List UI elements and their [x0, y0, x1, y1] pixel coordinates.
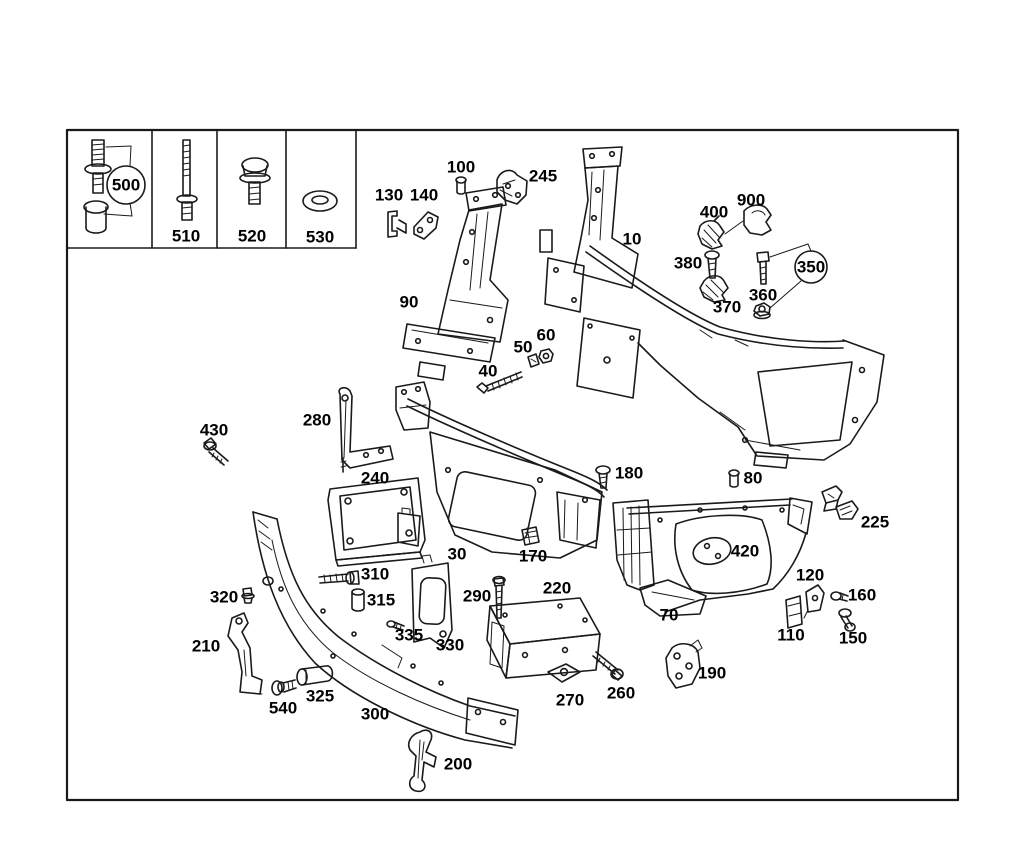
- part-label-50[interactable]: 50: [514, 339, 533, 356]
- part-label-500[interactable]: 500: [112, 177, 140, 194]
- part-label-420[interactable]: 420: [731, 543, 759, 560]
- part-label-200[interactable]: 200: [444, 756, 472, 773]
- part-label-320[interactable]: 320: [210, 589, 238, 606]
- part-label-400[interactable]: 400: [700, 204, 728, 221]
- part-label-270[interactable]: 270: [556, 692, 584, 709]
- part-label-240[interactable]: 240: [361, 470, 389, 487]
- part-label-380[interactable]: 380: [674, 255, 702, 272]
- part-label-10[interactable]: 10: [623, 231, 642, 248]
- part-label-430[interactable]: 430: [200, 422, 228, 439]
- part-label-510[interactable]: 510: [172, 228, 200, 245]
- part-label-300[interactable]: 300: [361, 706, 389, 723]
- part-label-350[interactable]: 350: [797, 259, 825, 276]
- part-label-330[interactable]: 330: [436, 637, 464, 654]
- part-label-30[interactable]: 30: [448, 546, 467, 563]
- part-label-260[interactable]: 260: [607, 685, 635, 702]
- part-label-80[interactable]: 80: [744, 470, 763, 487]
- callout-layer: 5005105205301002451301401090900400380370…: [0, 0, 1024, 852]
- part-label-140[interactable]: 140: [410, 187, 438, 204]
- part-label-540[interactable]: 540: [269, 700, 297, 717]
- part-label-530[interactable]: 530: [306, 229, 334, 246]
- part-label-245[interactable]: 245: [529, 168, 557, 185]
- part-label-310[interactable]: 310: [361, 566, 389, 583]
- parts-diagram-stage: 5005105205301002451301401090900400380370…: [0, 0, 1024, 852]
- part-label-100[interactable]: 100: [447, 159, 475, 176]
- part-label-280[interactable]: 280: [303, 412, 331, 429]
- part-label-180[interactable]: 180: [615, 465, 643, 482]
- part-label-160[interactable]: 160: [848, 587, 876, 604]
- part-label-70[interactable]: 70: [660, 607, 679, 624]
- part-label-220[interactable]: 220: [543, 580, 571, 597]
- part-label-110[interactable]: 110: [777, 627, 804, 644]
- part-label-335[interactable]: 335: [395, 627, 423, 644]
- part-label-900[interactable]: 900: [737, 192, 765, 209]
- part-label-370[interactable]: 370: [713, 299, 741, 316]
- part-label-60[interactable]: 60: [537, 327, 556, 344]
- part-label-210[interactable]: 210: [192, 638, 220, 655]
- part-label-360[interactable]: 360: [749, 287, 777, 304]
- part-label-40[interactable]: 40: [479, 363, 498, 380]
- part-label-520[interactable]: 520: [238, 228, 266, 245]
- part-label-170[interactable]: 170: [519, 548, 547, 565]
- part-label-325[interactable]: 325: [306, 688, 334, 705]
- part-label-130[interactable]: 130: [375, 187, 403, 204]
- part-label-90[interactable]: 90: [400, 294, 419, 311]
- part-label-225[interactable]: 225: [861, 514, 889, 531]
- part-label-120[interactable]: 120: [796, 567, 824, 584]
- part-label-150[interactable]: 150: [839, 630, 867, 647]
- part-label-315[interactable]: 315: [367, 592, 395, 609]
- part-label-190[interactable]: 190: [698, 665, 726, 682]
- part-label-290[interactable]: 290: [463, 588, 491, 605]
